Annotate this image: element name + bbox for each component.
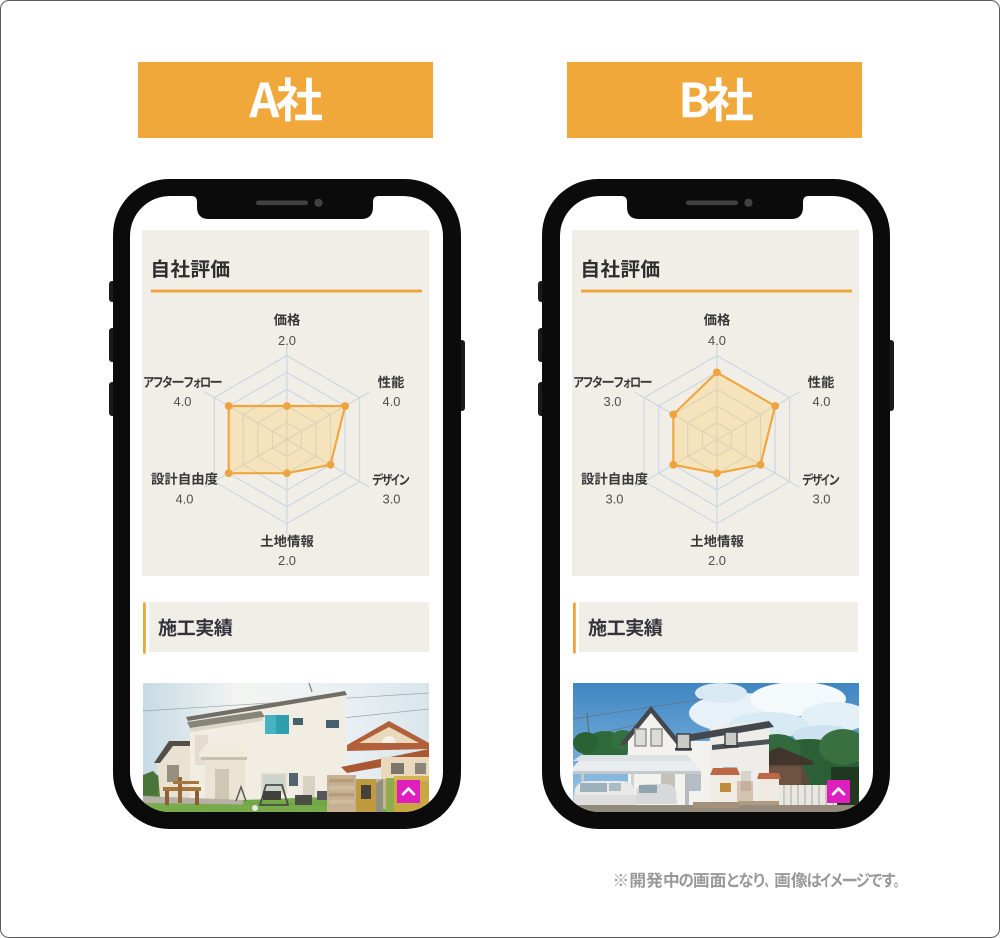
svg-text:4.0: 4.0 — [174, 394, 192, 409]
svg-text:2.0: 2.0 — [708, 553, 726, 568]
svg-text:2.0: 2.0 — [278, 333, 296, 348]
svg-text:3.0: 3.0 — [812, 492, 830, 507]
svg-text:4.0: 4.0 — [176, 492, 194, 507]
svg-text:4.0: 4.0 — [708, 333, 726, 348]
svg-text:4.0: 4.0 — [383, 394, 401, 409]
svg-text:3.0: 3.0 — [603, 394, 621, 409]
svg-text:2.0: 2.0 — [278, 553, 296, 568]
svg-text:4.0: 4.0 — [812, 394, 830, 409]
svg-text:3.0: 3.0 — [383, 492, 401, 507]
svg-text:3.0: 3.0 — [605, 492, 623, 507]
